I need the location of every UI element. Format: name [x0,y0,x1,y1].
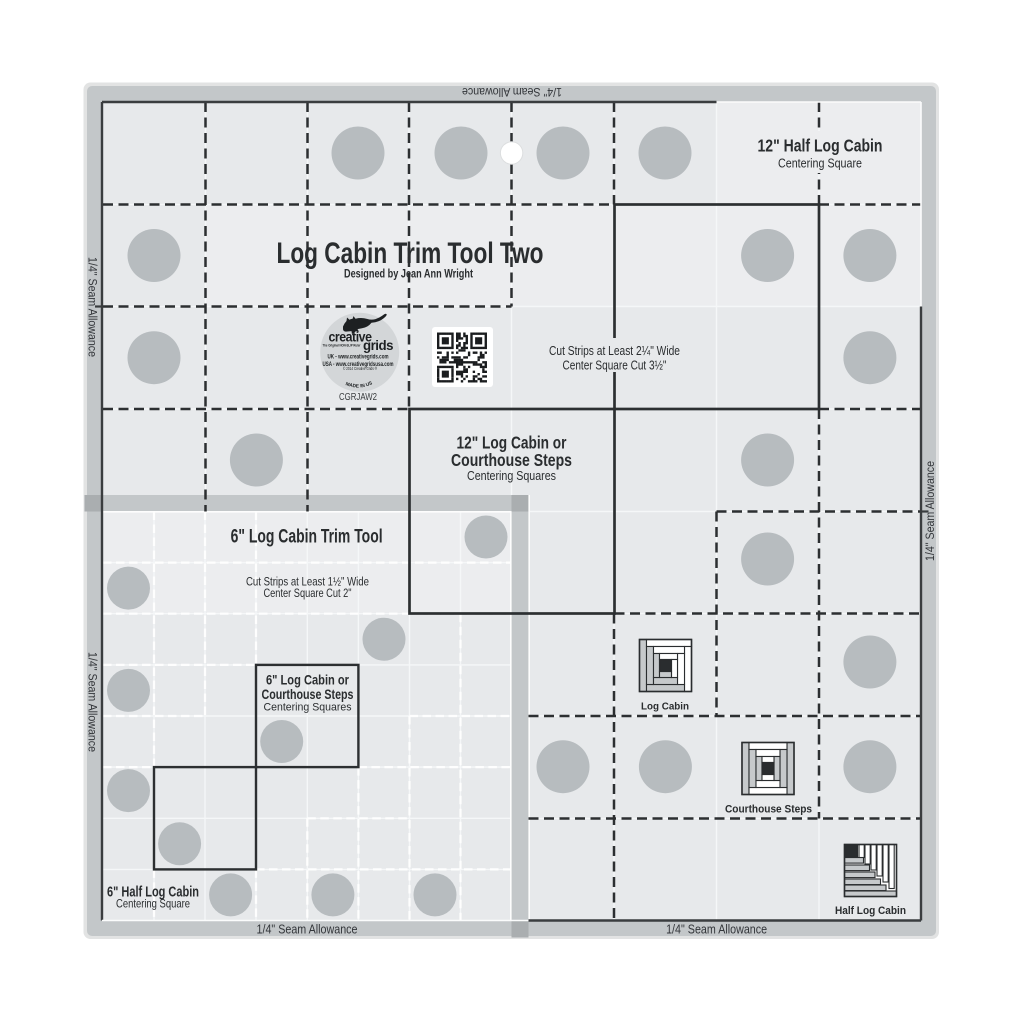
svg-text:1/4" Seam Allowance: 1/4" Seam Allowance [86,257,100,357]
svg-text:Centering Square: Centering Square [778,156,862,171]
svg-text:Log Cabin Trim Tool Two: Log Cabin Trim Tool Two [277,237,544,270]
svg-text:grids: grids [363,338,393,353]
svg-text:1/4" Seam Allowance: 1/4" Seam Allowance [462,85,562,99]
svg-text:© 2014 Creative Grids ®: © 2014 Creative Grids ® [343,366,378,371]
svg-text:1/4" Seam Allowance: 1/4" Seam Allowance [86,652,100,752]
svg-text:1/4" Seam Allowance: 1/4" Seam Allowance [257,923,358,937]
svg-text:UK - www.creativegrids.com: UK - www.creativegrids.com [328,354,389,361]
svg-text:1/4" Seam Allowance: 1/4" Seam Allowance [923,461,937,561]
svg-text:The Original NON-SLIP Ruler: The Original NON-SLIP Ruler [323,344,362,348]
svg-text:6" Log Cabin Trim Tool: 6" Log Cabin Trim Tool [231,527,383,548]
svg-text:Log Cabin: Log Cabin [641,701,689,713]
svg-text:Half Log Cabin: Half Log Cabin [835,905,906,917]
svg-text:Cut Strips at Least 2¼" Wide: Cut Strips at Least 2¼" Wide [549,343,680,358]
svg-text:Center Square Cut 2": Center Square Cut 2" [264,586,352,600]
svg-text:Designed by Jean Ann Wright: Designed by Jean Ann Wright [344,267,473,281]
svg-text:12" Half Log Cabin: 12" Half Log Cabin [758,136,883,156]
svg-text:Courthouse Steps: Courthouse Steps [725,804,812,816]
svg-text:1/4" Seam Allowance: 1/4" Seam Allowance [666,923,767,937]
svg-text:Center Square Cut 3½": Center Square Cut 3½" [563,358,667,373]
svg-text:Centering Square: Centering Square [116,898,190,911]
svg-text:Centering Squares: Centering Squares [264,702,352,714]
svg-text:Centering Squares: Centering Squares [467,468,556,483]
svg-text:CGRJAW2: CGRJAW2 [339,392,377,403]
svg-text:Courthouse Steps: Courthouse Steps [451,450,572,470]
svg-text:Courthouse Steps: Courthouse Steps [262,686,354,702]
